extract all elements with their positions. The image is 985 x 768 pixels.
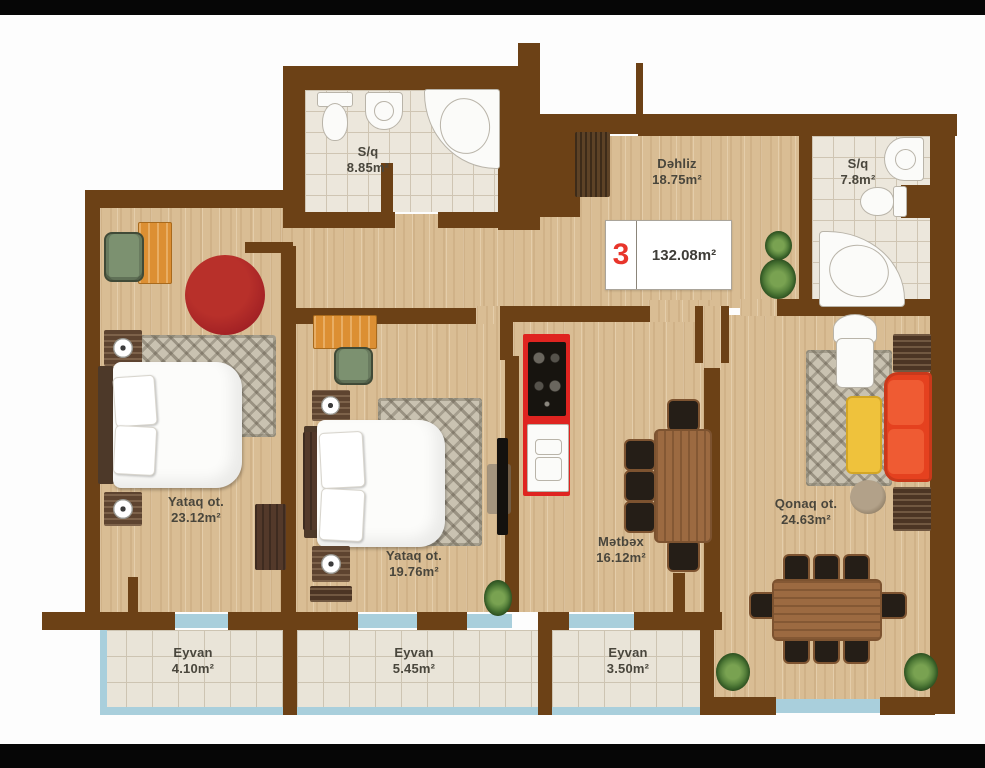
round-rug [185,255,265,335]
wall-segment [695,306,703,363]
plant [904,653,938,691]
room-area: 3.50m² [607,661,649,677]
wall-segment [700,612,714,715]
room-area: 19.76m² [386,564,442,580]
room-label-balcony-right: Eyvan 3.50m² [607,645,649,677]
wall-segment [417,612,467,630]
floor-door-kitchen [648,306,695,322]
floor-door-living [703,306,721,370]
wall-segment [296,612,358,630]
floor-door-bedroom-mid [476,306,500,324]
wall-segment [228,612,283,630]
wall-segment [283,612,297,715]
wall-segment [500,306,513,360]
desk-chair [334,347,373,385]
wall-segment [538,612,552,715]
nightstand [312,546,350,582]
room-name: Yataq ot. [168,494,224,510]
window [776,699,880,713]
wall-segment [283,66,305,228]
room-label-balcony-left: Eyvan 4.10m² [172,645,214,677]
wall-segment [552,612,569,630]
wall-segment [42,612,137,630]
room-area: 7.8m² [841,172,876,188]
room-area: 23.12m² [168,510,224,526]
dining-table [772,579,882,641]
dining-chair [624,439,656,471]
wall-segment [721,306,729,363]
room-area: 24.63m² [775,512,837,528]
room-area: 8.85m² [347,160,389,176]
wall-segment [930,114,955,714]
dining-chair [624,501,656,533]
plant [484,580,512,616]
room-label-balcony-mid: Eyvan 5.45m² [393,645,435,677]
room-name: S/q [841,156,876,172]
wall-segment [880,697,935,715]
unit-total-area: 132.08m² [637,221,731,289]
room-area: 18.75m² [652,172,702,188]
wall-segment [638,114,957,136]
nightstand [104,330,142,366]
room-label-bedroom-left: Yataq ot. 23.12m² [168,494,224,526]
room-label-living: Qonaq ot. 24.63m² [775,496,837,528]
balcony-glazing [100,707,283,715]
entry-mat [575,132,610,197]
room-name: S/q [347,144,389,160]
desk-chair [104,232,144,282]
room-name: Mətbəx [596,534,646,550]
room-name: Dəhliz [652,156,702,172]
unit-number: 3 [606,221,637,289]
pillow [113,425,158,476]
kitchen-sink [527,424,569,492]
wall-segment [714,697,776,715]
room-area: 4.10m² [172,661,214,677]
pillow [319,431,366,489]
dining-chair [624,470,656,502]
wardrobe [255,504,286,570]
dining-table [654,429,712,543]
wall-segment [500,306,650,322]
wall-segment [283,212,395,228]
side-table [850,480,886,514]
room-name: Qonaq ot. [775,496,837,512]
window [175,614,228,628]
room-label-kitchen: Mətbəx 16.12m² [596,534,646,566]
washbasin [365,92,403,130]
plant [716,653,750,691]
wall-segment [128,612,175,630]
dining-chair [667,399,700,432]
nightstand [104,492,142,526]
cooktop [528,342,566,416]
sofa [884,372,932,482]
window [358,614,417,628]
room-name: Eyvan [393,645,435,661]
room-label-bedroom-mid: Yataq ot. 19.76m² [386,548,442,580]
wall-segment [533,193,580,217]
wall-segment [283,66,540,90]
wall-segment [518,43,540,70]
desk [313,315,377,349]
sideboard [893,334,931,372]
wall-segment [673,612,722,630]
wall-segment [85,190,285,208]
room-label-bath-top: S/q 8.85m² [347,144,389,176]
window [467,614,512,628]
bench [310,586,352,602]
bottom-letterbox-bar [0,744,985,768]
coffee-table [846,396,882,474]
window [569,614,634,628]
wall-segment [636,63,643,116]
floor-door-bath-right [740,299,777,316]
wall-segment [245,242,293,253]
wall-segment [498,114,575,200]
top-letterbox-bar [0,0,985,15]
room-label-bath-right: S/q 7.8m² [841,156,876,188]
wall-segment [438,212,540,228]
balcony-glazing [297,707,538,715]
dining-chair [667,539,700,572]
balcony-glazing [552,707,700,715]
room-name: Eyvan [607,645,649,661]
armchair-seat [836,338,874,388]
tv [497,438,508,535]
toilet [317,92,353,142]
toilet [860,184,906,218]
sideboard [893,487,931,531]
floor-plan-canvas: 3 132.08m² [0,0,985,768]
wall-segment [575,114,643,134]
room-area: 16.12m² [596,550,646,566]
room-area: 5.45m² [393,661,435,677]
wall-segment [799,136,812,304]
wall-segment [634,612,674,630]
nightstand [312,390,350,421]
wardrobe [303,432,317,530]
plant [760,259,796,299]
unit-info-box: 3 132.08m² [605,220,732,290]
bed-headboard [98,366,114,484]
room-name: Yataq ot. [386,548,442,564]
washbasin [884,137,924,181]
pillow [112,375,157,428]
pillow [319,488,366,542]
room-label-hallway: Dəhliz 18.75m² [652,156,702,188]
balcony-glazing [100,630,107,715]
plant [765,231,792,260]
room-name: Eyvan [172,645,214,661]
